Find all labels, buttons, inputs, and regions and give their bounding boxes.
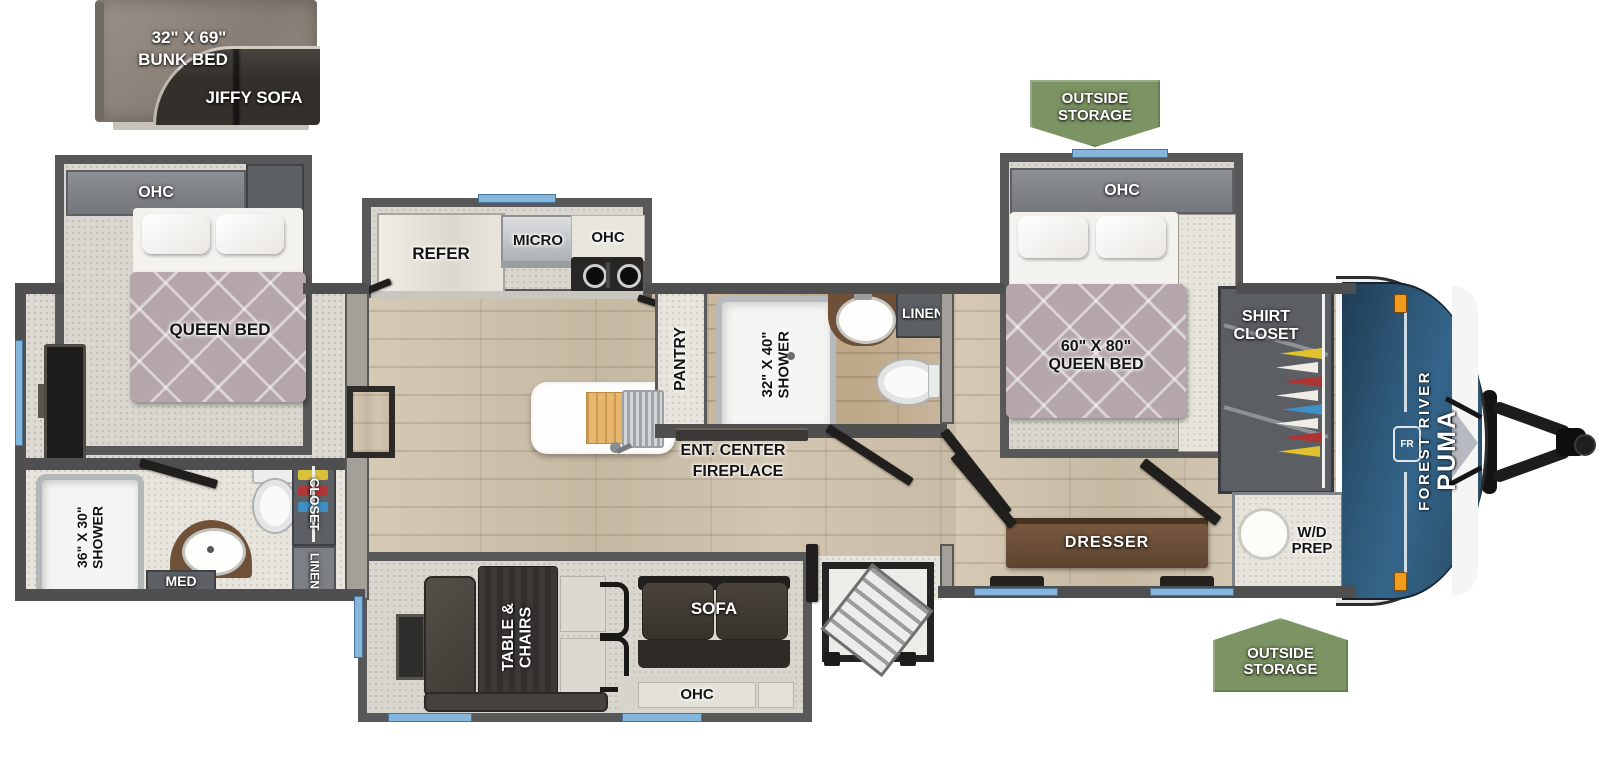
hitch-knob [1574,434,1596,456]
brand-model-labelbox: PUMA [1432,380,1464,520]
top-wall-2 [303,283,369,294]
dinette-table-label: TABLE & CHAIRS [500,603,535,671]
jiffy-sofa-label: JIFFY SOFA [191,70,317,107]
ent-center-labelbox: ENT. CENTER [648,441,818,461]
fireplace-label: FIREPLACE [693,463,784,481]
mid-bath-shower: 32" X 40" SHOWER [716,296,836,434]
dinette-end-window [396,614,426,680]
mid-bath-sink [836,296,896,344]
kitchen-ohc: OHC [571,215,645,261]
rear-bed-label-box: QUEEN BED [140,318,300,342]
dresser: DRESSER [1006,518,1208,568]
front-bedroom-ohc: OHC [1010,168,1234,214]
dinette-bottom-window-left [388,713,472,722]
entry-steps-foot-right [900,652,916,666]
shirt-closet-pole [1322,292,1325,488]
stove-burner-left [583,264,607,288]
bottom-wall-left [15,589,365,601]
kitchen-counter-lip [371,291,643,299]
dresser-label: DRESSER [1065,534,1149,552]
front-bedroom-ohc-label: OHC [1104,182,1140,200]
stove-center-bar [606,262,610,288]
bottom-window-left [974,588,1058,596]
shirt-closet-labelbox: SHIRT CLOSET [1222,304,1310,348]
outside-storage-banner-bottom: OUTSIDE STORAGE [1213,618,1348,692]
rear-bath-closet-label: CLOSET [307,478,321,531]
brand-model-label: PUMA [1434,409,1462,491]
sofa-ohc-right [758,682,794,708]
sofa-labelbox: SOFA [658,598,770,620]
dinette-table: TABLE & CHAIRS [478,566,558,708]
top-wall-4 [1236,283,1356,294]
sofa-label: SOFA [691,600,737,619]
bunk-bed-text: BUNK BED [138,50,228,69]
marker-light-top [1394,294,1407,313]
front-bed-labelbox: 60" X 80" QUEEN BED [1016,334,1176,378]
entry-door-jamb [806,544,818,602]
outside-storage-banner-top: OUTSIDE STORAGE [1030,80,1160,147]
mid-bath-shower-label: 32" X 40" SHOWER [760,331,793,399]
front-bed-pillow-left [1018,216,1088,258]
floorplan-canvas: 32" X 69" BUNK BED JIFFY SOFA OUTSIDE ST… [0,0,1600,763]
refrigerator: REFER [377,213,505,295]
top-wall-3 [645,283,1005,294]
wd-prep-label: W/D PREP [1292,525,1333,558]
top-wall-1 [15,283,64,294]
dinette-chair-top [600,582,629,638]
pantry-label: PANTRY [672,327,690,391]
kitchen-ohc-label: OHC [591,230,624,247]
rear-bath-sink-drain [207,546,214,553]
cutting-board [586,392,624,444]
kitchen-window [478,194,556,203]
mid-bath-faucet [854,293,872,300]
rear-bath-closet-labelbox: CLOSET [292,462,336,546]
island-sink [622,390,664,448]
entertainment-center [676,428,808,441]
dinette-bottom-window-right [622,713,702,722]
bunk-bed-label: BUNK BED [103,32,263,69]
mid-bath-shower-drain [787,352,795,360]
sofa-ohc: OHC [638,682,756,708]
microwave-vent [501,261,571,268]
wd-prep-labelbox: W/D PREP [1282,518,1342,564]
jiffy-sofa-text: JIFFY SOFA [206,88,303,107]
sofa-ohc-label: OHC [680,687,713,704]
outside-storage-top-text: OUTSIDE STORAGE [1058,91,1132,124]
rear-bed-pillow-left [142,214,210,254]
stove-burner-right [617,264,641,288]
rear-window [15,340,23,446]
cap-pinstripe-bottom [1404,472,1407,584]
tv-icon [44,344,86,462]
mid-bath-toilet-tank [928,364,940,398]
rear-bath-linen-label: LINEN [307,553,320,589]
marker-light-bottom [1394,572,1407,591]
microwave-label: MICRO [513,233,563,250]
bunkroom-doorway [347,386,395,458]
dinette-bench [424,576,476,698]
outside-storage-bottom-text: OUTSIDE STORAGE [1244,646,1318,679]
brand-make-label: FOREST RIVER [1417,370,1434,511]
refrigerator-label: REFER [412,245,470,264]
rear-bath-shower: 36" X 30" SHOWER [36,474,144,600]
bottom-window-right [1150,588,1234,596]
microwave: MICRO [501,215,575,267]
dinette-left-window [354,596,363,658]
bunk-sofa-inset: 32" X 69" BUNK BED JIFFY SOFA [95,0,317,132]
med-cabinet-label: MED [165,574,196,589]
front-bed-label: 60" X 80" QUEEN BED [1048,338,1143,373]
fireplace-labelbox: FIREPLACE [658,462,818,482]
cap-pinstripe-top [1404,300,1407,412]
front-bedroom-window [1072,149,1168,158]
ent-center-label: ENT. CENTER [681,442,786,460]
front-bedroom-wall-upper [940,292,954,424]
shirt-closet-label: SHIRT CLOSET [1234,308,1299,343]
rear-bed-pillow-right [216,214,284,254]
entry-steps-foot-left [824,652,840,666]
rear-bedroom-ohc-label: OHC [138,184,174,202]
rear-bath-sink [182,528,246,576]
rear-bath-shower-label: 36" X 30" SHOWER [75,506,106,569]
dinette-under-shelf [424,692,608,712]
sofa-seat [638,640,790,668]
mid-bath-linen-label: LINEN [902,306,944,321]
rear-bed-label: QUEEN BED [169,321,270,340]
front-bed-pillow-right [1096,216,1166,258]
